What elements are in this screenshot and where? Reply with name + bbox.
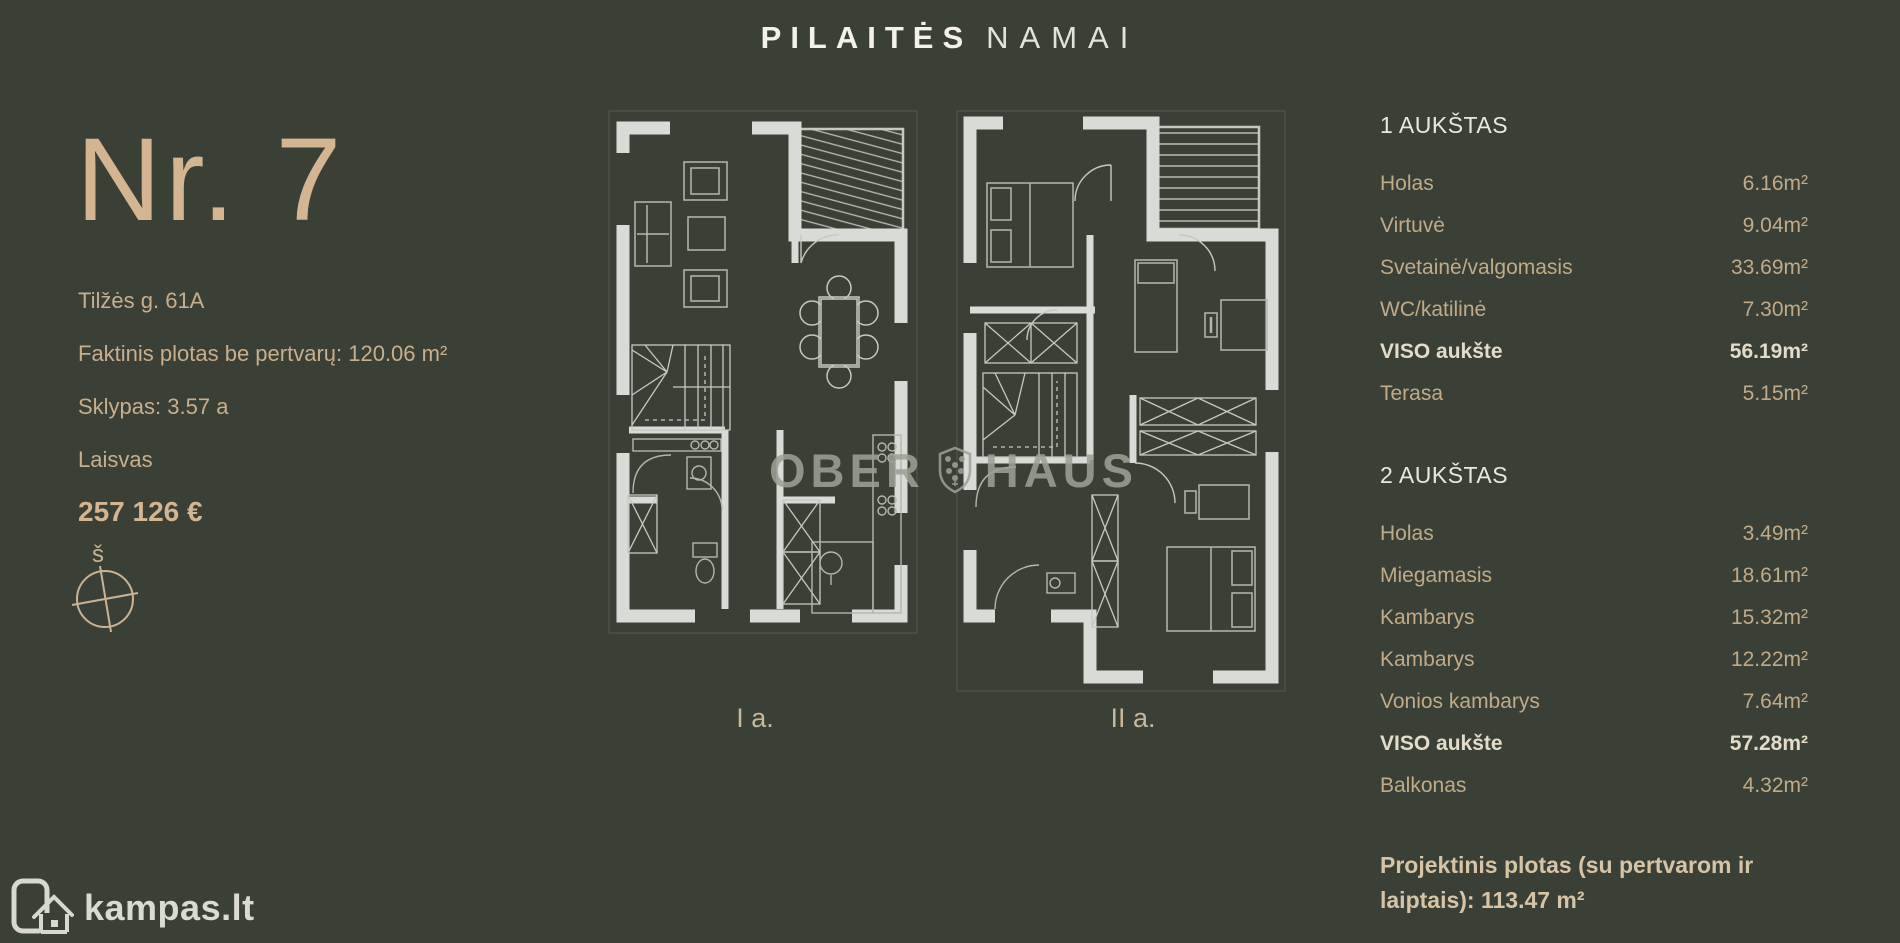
area-row: Svetainė/valgomasis 33.69m² — [1380, 247, 1808, 289]
listing-price: 257 126 € — [78, 496, 203, 528]
area-row: Holas 3.49m² — [1380, 513, 1808, 555]
room-area: 33.69m² — [1731, 256, 1808, 280]
room-area: 57.28m² — [1730, 732, 1808, 756]
coffee-table — [688, 217, 725, 250]
room-area: 7.64m² — [1743, 690, 1808, 714]
oberhaus-watermark: OBER HAUS — [756, 441, 1151, 499]
shower — [633, 455, 671, 493]
plan1-stairs — [632, 345, 730, 430]
floor2-plan-label: II a. — [1078, 703, 1188, 734]
door-arc — [995, 565, 1039, 609]
plan1-living-furniture — [635, 162, 727, 307]
room-label: Holas — [1380, 522, 1434, 546]
brand-secondary: NAMAI — [986, 20, 1139, 55]
room-label: Virtuvė — [1380, 214, 1445, 238]
area-row: Holas 6.16m² — [1380, 163, 1808, 205]
room-label: Vonios kambarys — [1380, 690, 1540, 714]
terrace-hatch — [795, 129, 903, 233]
floor2-title: 2 AUKŠTAS — [1380, 462, 1808, 489]
area-row-total: VISO aukšte 56.19m² — [1380, 331, 1808, 373]
plan2-bed-main — [987, 183, 1073, 267]
area-row: Miegamasis 18.61m² — [1380, 555, 1808, 597]
listing-number: Nr. 7 — [76, 112, 345, 248]
area-row: Vonios kambarys 7.64m² — [1380, 681, 1808, 723]
area-row: Kambarys 15.32m² — [1380, 597, 1808, 639]
floor-plan-1 — [609, 111, 917, 633]
room-label: Kambarys — [1380, 606, 1475, 630]
room-label: Balkonas — [1380, 774, 1466, 798]
room-label: VISO aukšte — [1380, 340, 1503, 364]
listing-status: Laisvas — [78, 447, 153, 473]
room-area: 56.19m² — [1730, 340, 1808, 364]
room-label: Kambarys — [1380, 648, 1475, 672]
desk — [1221, 300, 1267, 350]
floor1-schedule: 1 AUKŠTAS Holas 6.16m² Virtuvė 9.04m² Sv… — [1380, 112, 1808, 415]
plan2-stairs-area — [983, 323, 1077, 457]
kampas-logo-icon — [8, 876, 74, 940]
plan2-bed-second — [1167, 547, 1255, 631]
kampas-logo-text: kampas.lt — [84, 887, 255, 929]
floor-plan-2 — [957, 111, 1285, 691]
room-area: 4.32m² — [1743, 774, 1808, 798]
floor2-schedule: 2 AUKŠTAS Holas 3.49m² Miegamasis 18.61m… — [1380, 462, 1808, 807]
area-row: Balkonas 4.32m² — [1380, 765, 1808, 807]
watermark-text-right: HAUS — [985, 443, 1138, 498]
dining-table — [800, 276, 878, 388]
plan1-interior-walls — [629, 235, 835, 609]
toilet — [696, 559, 714, 583]
listing-plot-line: Sklypas: 3.57 a — [78, 394, 228, 420]
room-label: Miegamasis — [1380, 564, 1492, 588]
room-area: 15.32m² — [1731, 606, 1808, 630]
oberhaus-shield-icon — [937, 446, 973, 494]
compass-icon — [69, 563, 145, 639]
room-label: WC/katilinė — [1380, 298, 1486, 322]
watermark-text-left: OBER — [769, 443, 925, 498]
area-row: WC/katilinė 7.30m² — [1380, 289, 1808, 331]
room-area: 6.16m² — [1743, 172, 1808, 196]
room-area: 5.15m² — [1743, 382, 1808, 406]
area-row: Terasa 5.15m² — [1380, 373, 1808, 415]
brand-title: PILAITĖSNAMAI — [0, 20, 1900, 56]
room-label: Terasa — [1380, 382, 1443, 406]
room-area: 9.04m² — [1743, 214, 1808, 238]
area-row: Virtuvė 9.04m² — [1380, 205, 1808, 247]
door-arc — [690, 478, 722, 510]
room-label: VISO aukšte — [1380, 732, 1503, 756]
kampas-logo: kampas.lt — [8, 876, 255, 940]
room-area: 7.30m² — [1743, 298, 1808, 322]
floor-plans-drawing — [595, 95, 1295, 715]
area-row-total: VISO aukšte 57.28m² — [1380, 723, 1808, 765]
room-label: Svetainė/valgomasis — [1380, 256, 1573, 280]
area-row: Kambarys 12.22m² — [1380, 639, 1808, 681]
floor1-title: 1 AUKŠTAS — [1380, 112, 1808, 139]
listing-area-line: Faktinis plotas be pertvarų: 120.06 m² — [78, 341, 447, 367]
single-bed — [1135, 260, 1177, 352]
floor1-plan-label: I a. — [700, 703, 810, 734]
room-area: 12.22m² — [1731, 648, 1808, 672]
room-area: 3.49m² — [1743, 522, 1808, 546]
room-area: 18.61m² — [1731, 564, 1808, 588]
brand-primary: PILAITĖS — [761, 20, 973, 55]
project-area-summary: Projektinis plotas (su pertvarom ir laip… — [1380, 848, 1792, 917]
room-label: Holas — [1380, 172, 1434, 196]
plan2-room-furniture — [1135, 260, 1267, 519]
balcony-hatch — [1155, 127, 1259, 229]
sink — [820, 552, 842, 574]
plan1-bathroom — [633, 439, 722, 583]
desk — [1199, 485, 1249, 519]
listing-address: Tilžės g. 61A — [78, 288, 204, 314]
